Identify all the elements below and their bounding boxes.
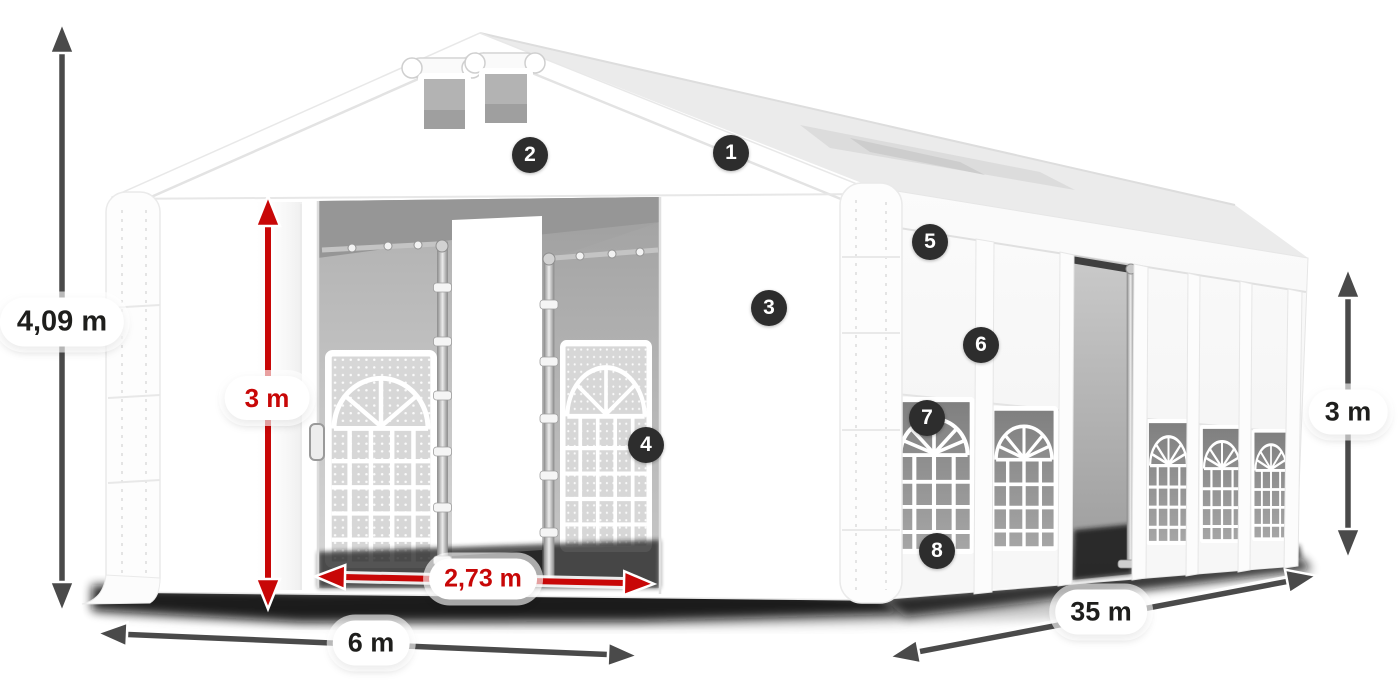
door-handle — [310, 424, 324, 460]
dimension-label-total-height: 4,09 m — [0, 298, 124, 347]
hotspot-marker-5[interactable]: 5 — [912, 224, 948, 260]
front-right-corner-column — [840, 183, 902, 603]
tent-dimensions-diagram: 4,09 m 3 m 2,73 m 6 m 35 m 3 m 1 2 3 4 5… — [0, 0, 1400, 700]
side-window — [1201, 427, 1242, 541]
side-window — [1147, 421, 1189, 543]
side-window — [1253, 431, 1289, 540]
hotspot-marker-6[interactable]: 6 — [963, 327, 999, 363]
hotspot-marker-1[interactable]: 1 — [713, 135, 749, 171]
dimension-label-entrance-height: 3 m — [225, 376, 310, 420]
side-window — [992, 408, 1056, 549]
tent-illustration — [0, 0, 1400, 700]
hotspot-marker-7[interactable]: 7 — [909, 400, 945, 436]
hotspot-marker-2[interactable]: 2 — [512, 137, 548, 173]
dimension-label-side-height: 3 m — [1309, 390, 1388, 435]
hotspot-marker-3[interactable]: 3 — [751, 290, 787, 326]
front-left-corner-column — [82, 192, 160, 604]
hotspot-marker-8[interactable]: 8 — [919, 533, 955, 569]
side-door-opening — [1072, 255, 1142, 580]
dimension-label-side-length: 35 m — [1055, 590, 1147, 635]
front-entrance — [318, 197, 660, 594]
hotspot-marker-4[interactable]: 4 — [628, 427, 664, 463]
entrance-mesh-window — [328, 353, 433, 564]
dimension-label-entrance-width: 2,73 m — [429, 559, 537, 600]
dimension-label-front-width: 6 m — [333, 621, 410, 666]
